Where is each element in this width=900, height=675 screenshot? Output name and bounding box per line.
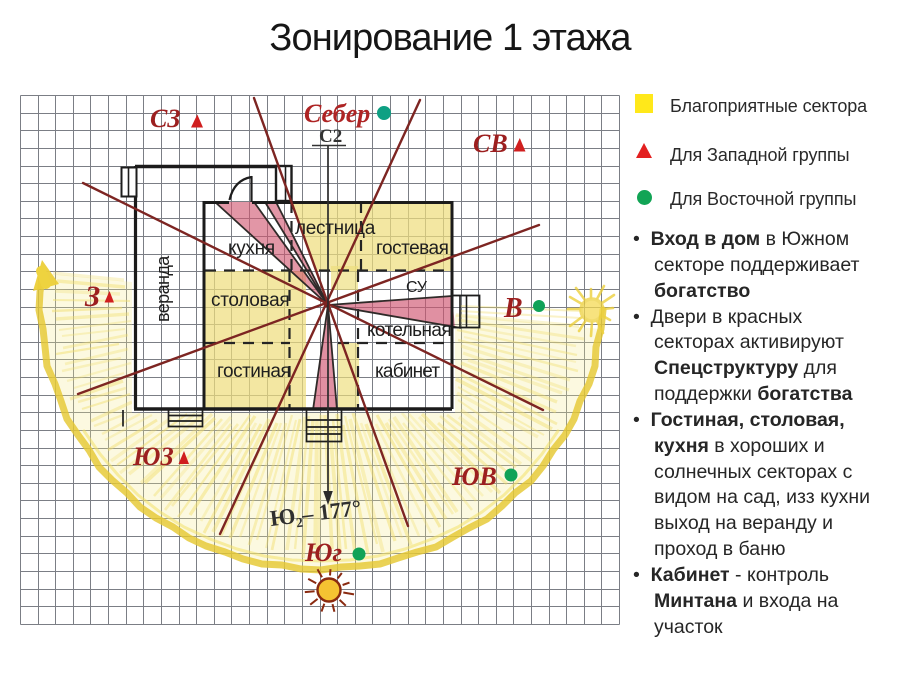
svg-text:веранда: веранда xyxy=(153,255,173,322)
svg-text:ЮВ: ЮВ xyxy=(451,462,497,491)
svg-text:кухня: кухня xyxy=(228,238,275,259)
svg-text:гостиная: гостиная xyxy=(217,361,290,382)
svg-text:СВ: СВ xyxy=(473,129,508,158)
svg-text:В: В xyxy=(503,293,523,324)
svg-text:Юг: Юг xyxy=(304,538,342,567)
svg-text:СЗ: СЗ xyxy=(150,104,181,133)
svg-text:столовая: столовая xyxy=(211,290,289,311)
svg-text:Себер: Себер xyxy=(304,99,370,128)
svg-text:З: З xyxy=(84,280,100,313)
svg-text:лестница: лестница xyxy=(295,218,376,239)
svg-text:гостевая: гостевая xyxy=(376,238,448,259)
svg-text:С2: С2 xyxy=(319,126,342,147)
svg-text:ЮЗ: ЮЗ xyxy=(132,442,174,471)
svg-text:котельная: котельная xyxy=(367,320,451,341)
svg-text:СУ: СУ xyxy=(406,279,428,296)
svg-text:кабинет: кабинет xyxy=(375,361,440,382)
